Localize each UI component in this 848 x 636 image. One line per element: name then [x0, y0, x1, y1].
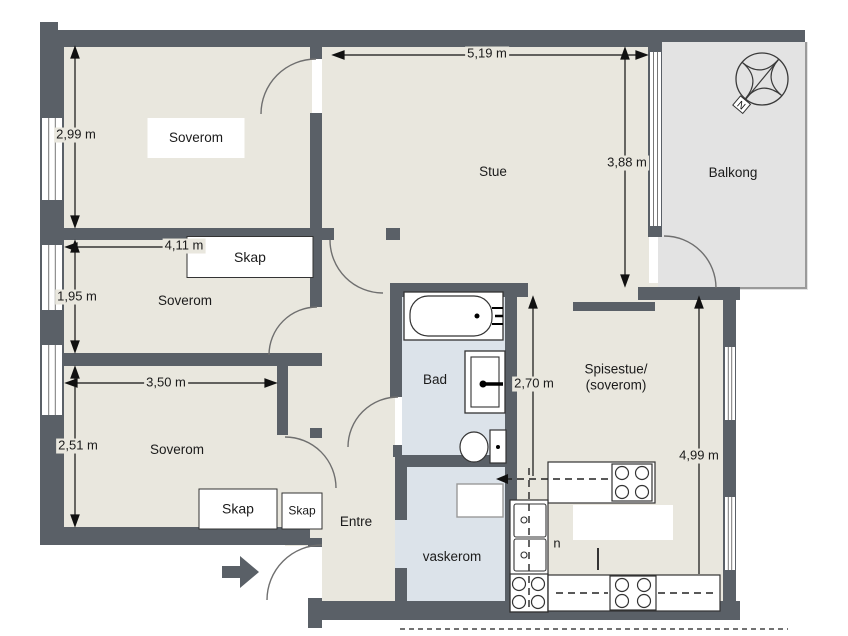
wall — [40, 22, 58, 31]
wall — [648, 228, 662, 237]
floor-entre — [285, 296, 395, 546]
wall — [40, 228, 334, 240]
wall — [386, 228, 400, 240]
wall — [310, 428, 322, 438]
floor-plan: N Soverom Soverom Soverom Stue Balkong B… — [0, 0, 848, 636]
wall — [505, 283, 517, 455]
wall — [573, 302, 655, 311]
toilet-icon — [460, 430, 506, 463]
entrance-door-swing-area — [267, 545, 322, 600]
wall — [395, 568, 407, 601]
floor-soverom-2 — [64, 239, 312, 354]
floor-plan-drawing: N — [0, 0, 848, 636]
window — [42, 118, 62, 200]
entrance-arrow-icon — [222, 556, 259, 588]
wall — [40, 527, 310, 545]
bathtub-icon — [404, 292, 503, 340]
vaskerom-door-threshold — [395, 520, 407, 568]
wall — [310, 47, 322, 59]
wall — [310, 113, 322, 228]
floor-stue — [322, 46, 649, 296]
floor-entre-south — [322, 545, 395, 601]
floor-soverom-1 — [64, 46, 312, 229]
sink-vanity-icon — [465, 351, 505, 413]
washing-machine-icon — [457, 484, 503, 517]
floor-spisestue — [517, 297, 736, 603]
wall — [395, 455, 407, 520]
window — [42, 245, 62, 310]
window — [725, 347, 735, 420]
window — [42, 345, 62, 415]
wall — [40, 353, 322, 366]
counter-top — [548, 462, 655, 503]
wall — [655, 30, 805, 42]
wall — [277, 366, 288, 435]
window — [650, 52, 661, 226]
wall — [40, 30, 662, 47]
wall — [310, 240, 322, 307]
window — [725, 497, 735, 570]
wall — [390, 283, 402, 397]
floor-balkong — [658, 42, 808, 290]
kitchen-appliance-block — [573, 505, 673, 540]
wall — [723, 295, 736, 620]
